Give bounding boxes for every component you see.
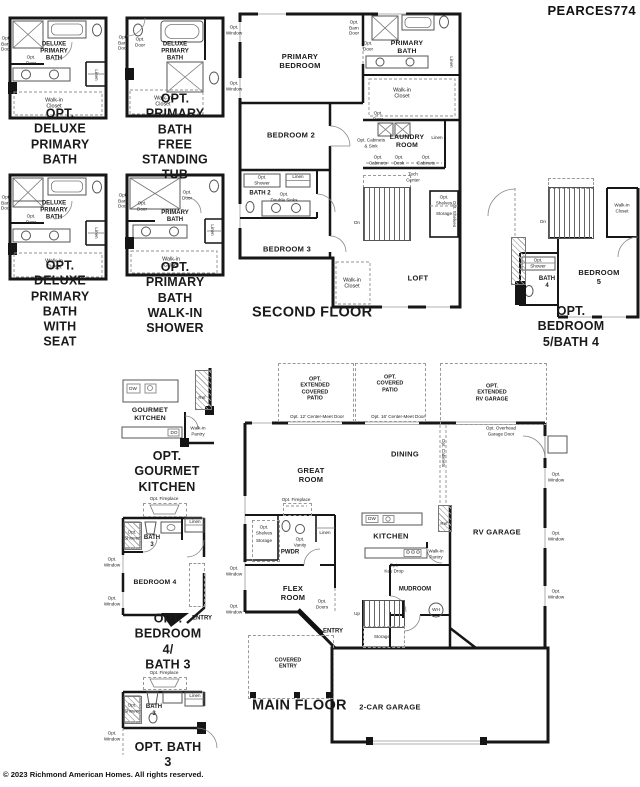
label-opt-shower: Opt. Shower [124,529,140,540]
label-up: Up [354,611,360,617]
label-walk-in-closet: Walk-in Closet [393,88,411,101]
plan-opt-deluxe-with-seat: DELUXE PRIMARY BATH Opt. Barn Door Opt. … [8,173,108,281]
label-opt-desk: Opt. Desk [394,154,404,165]
label-linen: Linen [292,174,303,180]
label-walk-in-shower-room: PRIMARY BATH [161,210,188,224]
label-opt-shelves: Opt. Shelves [436,194,452,205]
label-walk-in-pantry: Walk-in Pantry [190,425,205,436]
label-opt-window: Opt. Window [226,24,242,35]
plan-second-floor: PRIMARY BEDROOM Opt. Window Opt. Window … [232,8,462,328]
label-opt-extended-rv-garage: OPT. EXTENDED RV GARAGE [476,383,509,402]
plan-opt-gourmet-kitchen: GOURMET KITCHEN DW DO Ref Walk-in Pantry… [108,368,238,493]
caption-opt-bedroom5-bath4: OPT. BEDROOM 5/BATH 4 [537,304,606,350]
stairs-down [363,187,411,241]
label-mudroom: MUDROOM [399,586,431,593]
label-bath-3: BATH 3 [146,704,162,718]
label-opt-door: Opt. Door [373,110,383,121]
label-refrigerator: Ref [198,395,205,401]
label-great-room: GREAT ROOM [297,467,324,485]
label-linen: Linen [448,56,454,67]
label-opt-key-drop: Opt. Key Drop [384,562,403,573]
label-deluxe-with-seat-room: DELUXE PRIMARY BATH [40,200,67,221]
label-opt-window: Opt. Window [226,603,242,614]
label-bath-4: BATH 4 [539,276,555,290]
label-double-oven: DO [171,430,178,436]
plan-main-floor: OPT. EXTENDED COVERED PATIO OPT. COVERED… [238,356,578,756]
label-opt-window: Opt. Window [548,530,564,541]
label-linen: Linen [93,227,99,238]
ref-hatch [195,370,212,410]
plan-opt-deluxe-primary-bath: DELUXE PRIMARY BATH Opt. Barn Door Opt. … [8,16,108,120]
label-opt-barn-door: Opt. Barn Door [118,34,128,51]
label-opt-fireplace: Opt. Fireplace [282,497,311,503]
label-opt-window: Opt. Window [104,730,120,741]
label-opt-cabinets: Opt. Cabinets [417,154,435,165]
label-gourmet-kitchen: GOURMET KITCHEN [132,407,168,423]
label-walk-in-pantry: Walk-in Pantry [428,548,443,559]
label-bath-3: BATH 3 [144,535,160,549]
label-opt-window: Opt. Window [226,565,242,576]
label-opt-door: Opt. Door [135,36,145,47]
caption-opt-deluxe-primary-bath: OPT. DELUXE PRIMARY BATH [31,107,89,168]
opt-fireplace-outline [143,677,187,690]
label-opt-covered-patio: OPT. COVERED PATIO [377,374,404,393]
closet-outline [189,563,205,607]
caption-opt-walk-in-shower: OPT. PRIMARY BATH WALK-IN SHOWER [146,260,204,336]
caption-opt-bedroom4-bath3: OPT. BEDROOM 4/ BATH 3 [130,612,207,673]
stairs-up [363,600,405,628]
label-opt-shower: Opt. Shower [254,174,270,185]
label-opt-window: Opt. Window [104,595,120,606]
label-deluxe-primary-bath-room: DELUXE PRIMARY BATH [40,41,67,62]
label-opt-double-sinks: Opt. Double Sinks [270,191,297,202]
label-laundry-room: LAUNDRY ROOM [390,134,424,150]
label-opt-window: Opt. Window [548,588,564,599]
label-opt-barn-door: Opt. Barn Door [1,194,11,211]
floorplan-sheet: PEARCES774 DELUXE PRIMARY BATH Opt. Barn… [0,0,640,787]
label-opt-shelves-vertical: Opt. Shelves [451,201,457,227]
copyright-notice: © 2023 Richmond American Homes. All righ… [3,770,203,779]
label-opt-extended-covered-patio: OPT. EXTENDED COVERED PATIO [300,376,329,402]
plan-opt-bedroom5-bath4: Dn Walk-in Closet BEDROOM 5 BATH 4 Opt. … [495,175,640,335]
label-free-standing-tub-room: DELUXE PRIMARY BATH [161,41,188,62]
label-opt-barn-door: Opt. Barn Door [1,35,11,52]
label-opt-12-center-meet-door: Opt. 12' Center-Meet Door [290,414,344,420]
label-bedroom-3: BEDROOM 3 [263,246,311,255]
plan-code: PEARCES774 [547,3,636,18]
label-primary-bedroom: PRIMARY BEDROOM [279,53,320,71]
label-opt-door: Opt. Door [26,54,36,65]
label-opt-shower: Opt. Shower [530,257,546,268]
label-opt-cabinets: Opt. Cabinets [369,154,387,165]
label-storage: Storage [256,538,272,544]
main-floor-title: MAIN FLOOR [252,697,347,714]
label-primary-bath: PRIMARY BATH [391,40,424,56]
label-opt-shower: Opt. Shower [124,702,140,713]
label-opt-window: Opt. Window [104,556,120,567]
label-walk-in-closet: Walk-in Closet [614,202,629,213]
label-water-heater: WH [432,607,440,613]
label-opt-door: Opt. Door [26,213,36,224]
label-opt-door: Opt. Door [182,189,192,200]
wall-hatch [511,237,526,285]
second-floor-title: SECOND FLOOR [252,304,372,321]
plan-opt-walk-in-shower: PRIMARY BATH Opt. Barn Door Opt. Door Op… [125,173,225,277]
label-linen: Linen [189,693,200,699]
caption-opt-deluxe-with-seat: OPT. DELUXE PRIMARY BATH WITH SEAT [31,258,89,350]
label-kitchen: KITCHEN [373,533,408,542]
label-bedroom-4: BEDROOM 4 [134,579,177,587]
label-opt-cabinets-sink: Opt. Cabinets & Sink [357,137,385,148]
caption-opt-free-standing-tub: OPT. PRIMARY BATH FREE STANDING TUB [142,91,208,183]
label-refrigerator: Ref [440,521,447,527]
label-dishwasher: DW [368,516,376,522]
label-rv-garage: RV GARAGE [473,529,521,538]
label-storage: Storage [436,211,452,217]
label-linen: Linen [431,135,442,141]
label-opt-doors: Opt. Doors [316,598,328,609]
label-linen: Linen [319,530,330,536]
plan-opt-free-standing-tub: DELUXE PRIMARY BATH Opt. Barn Door Opt. … [125,16,225,118]
label-covered-entry: COVERED ENTRY [275,658,302,671]
label-opt-overhead-garage-door: Opt. Overhead Garage Door [486,425,516,436]
label-entry: ENTRY [323,628,343,635]
label-opt-window: Opt. Window [548,471,564,482]
label-opt-fireplace: Opt. Fireplace [150,496,179,502]
label-linen: Linen [93,69,99,80]
label-opt-door: Opt. Door [137,200,147,211]
label-opt-shelves: Opt. Shelves [256,524,272,535]
label-opt-barn-door: Opt. Barn Door [118,192,128,209]
label-dishwasher: DW [129,386,137,392]
label-storage: Storage [374,634,390,640]
label-flex-room: FLEX ROOM [281,585,306,603]
label-two-car-garage: 2-CAR GARAGE [359,704,421,713]
label-linen: Linen [209,224,215,235]
label-opt-cabinets: Opt. Cabinets [440,439,446,467]
label-opt-vanity: Opt. Vanity [294,536,306,547]
label-walk-in-closet: Walk-in Closet [343,278,361,291]
label-bedroom-2: BEDROOM 2 [267,132,315,141]
label-opt-barn-door: Opt. Barn Door [349,19,359,36]
ref-hatch [438,505,452,532]
opt-fireplace-outline [143,503,187,517]
plan-opt-bedroom4-bath3: Opt. Fireplace Linen Opt. Shower BATH 3 … [105,495,245,660]
label-linen: Linen [189,519,200,525]
label-pwdr: PWDR [281,549,299,556]
plan-opt-bath3: Opt. Fireplace Linen Opt. Shower BATH 3 … [105,660,245,770]
label-dn: Dn [540,219,546,225]
caption-opt-gourmet-kitchen: OPT. GOURMET KITCHEN [132,449,203,495]
stairs-down [548,187,594,239]
label-opt-door: Opt. Door [363,40,373,51]
opt-fireplace-outline [283,503,312,516]
label-opt-window: Opt. Window [226,80,242,91]
label-dn: Dn [354,220,360,226]
label-opt-fireplace: Opt. Fireplace [150,670,179,676]
label-opt-16-center-meet-door: Opt. 16' Center-Meet Door [371,414,425,420]
label-loft: LOFT [408,275,429,284]
label-bath-2: BATH 2 [249,190,270,197]
label-bedroom-5: BEDROOM 5 [578,269,619,287]
label-tech-center: Tech Center [406,171,420,182]
label-dining: DINING [391,451,419,460]
caption-opt-bath3: OPT. BATH 3 [130,740,207,771]
